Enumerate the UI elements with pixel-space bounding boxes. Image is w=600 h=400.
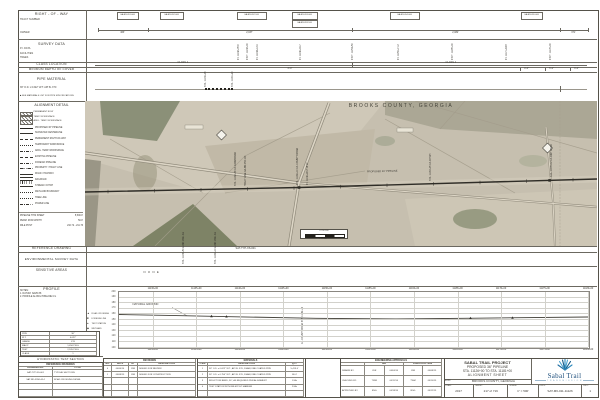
dimension-label: 463' <box>111 31 135 34</box>
profile-note: NOTES: <box>20 290 29 292</box>
legend-line-sample <box>20 198 33 199</box>
legend-item-label: PERMANENT RIGHT-OF-WAY <box>35 138 66 140</box>
survey-station-callout: P.O.T. 11176+00 <box>550 43 553 60</box>
dimension-tick <box>148 28 149 32</box>
station-label-top: 11130+00 <box>140 287 166 290</box>
right-of-way-band: GA-BR-051.000GA-BR-052.000GA-BR-052.100G… <box>86 10 598 39</box>
tract-number-box: GA-BR-052.000 <box>160 12 184 20</box>
legend-total-value: 50.0' <box>51 220 83 222</box>
station-label-top: 11165+00 <box>445 287 471 290</box>
legend-total-label: PIPELINE THIS SHEET <box>20 215 44 217</box>
survey-data-band: P.I. 11142+35.6P.O.T. 11143+00P.I. 11144… <box>86 39 598 62</box>
legend-line-sample <box>20 174 33 178</box>
profile-symbol-marker: ■ <box>87 317 89 320</box>
profile-grid-frame <box>118 291 590 349</box>
blank-panel <box>305 358 342 399</box>
table-cell: RSG <box>404 387 423 397</box>
table-cell <box>208 391 286 397</box>
tract-number-box: GA-BR-054.000 <box>390 12 420 20</box>
table-cell: CLASS <box>21 352 50 356</box>
legend-item-label: POWER LINE <box>35 203 49 205</box>
brand-subtitle-text: T R A N S M I S S I O N <box>547 380 582 382</box>
legend-line-sample <box>20 163 33 164</box>
section-title-min-depth: MINIMUM DEPTH OF COVER <box>18 67 85 71</box>
survey-station-callout: P.I. 11159+71.2 <box>398 44 401 60</box>
legend-hatch-swatch <box>20 120 33 125</box>
legend-line-sample <box>20 168 33 169</box>
table-cell: SAT-RD-XING-014 <box>19 377 53 384</box>
depth-value: 5'-0" <box>544 67 560 70</box>
location-label: LOC: <box>445 379 451 382</box>
profile-symbol-label: WETLAND <box>92 328 102 330</box>
survey-station-callout: P.O.T. 11143+00 <box>247 43 250 60</box>
brand-wordmark: Sabal Trail <box>531 372 598 380</box>
dimension-tick <box>588 28 589 32</box>
footer-cell-label: SCALE: <box>509 385 517 387</box>
footer-cell: SCALE:1" = 500' <box>508 384 538 398</box>
survey-station-callout: P.O.T. 11154+50 <box>352 43 355 60</box>
legend-divider <box>19 212 83 213</box>
elevation-label: 100 <box>99 346 116 349</box>
station-label-top: 11175+00 <box>532 287 558 290</box>
table-cell <box>138 391 196 397</box>
profile-panel: NATURAL GROUND C/L COUNTY ROAD STA. 1114… <box>86 286 598 357</box>
legend-line-sample <box>20 186 33 187</box>
tract-number-box: GA-BR-055.000 <box>521 12 543 20</box>
brand-rule <box>535 380 546 381</box>
scale-bar-numbers: 0 250 500 <box>301 230 347 232</box>
table-cell: 1 <box>50 352 97 356</box>
legend-item-label: RAILROAD <box>35 179 47 181</box>
pipe-tick <box>560 86 561 92</box>
location-value: BROOKS COUNTY, GEORGIA <box>456 379 531 383</box>
legend-hatch-label: ADDL. TEMP. WORKSPACE <box>34 120 62 122</box>
footer-cell-value: 217 of 719 <box>474 389 507 393</box>
depth-value: 3'-0" <box>569 67 585 70</box>
pipe-material-line <box>95 89 587 90</box>
table-cell: APPROVED BY: <box>341 387 365 397</box>
table-cell: SAT-TYP-XS-001 <box>19 370 53 377</box>
tract-number-box: GA-BR-053.100 <box>292 20 318 28</box>
brand-subtitle: T R A N S M I S S I O N <box>535 380 594 382</box>
pipeline-crossing-callout: STA. 11176+12 C/L DIRT ROAD <box>551 145 554 178</box>
label-tract-number: TRACT NUMBER <box>20 18 40 21</box>
station-label-top: 11135+00 <box>183 287 209 290</box>
legend-item-label: TREE LINE <box>35 197 47 199</box>
pipe-segment-heavy <box>205 88 233 90</box>
table-cell: TWM <box>365 376 385 386</box>
station-label-top: 11140+00 <box>227 287 253 290</box>
class-value-left: CLASS 1 <box>178 61 189 64</box>
scale-text: 1" = 500' <box>300 238 346 240</box>
legend-line-sample <box>20 180 33 183</box>
elevation-label: 180 <box>99 301 116 304</box>
footer-cell-label: REV: <box>583 385 588 387</box>
sensitive-areas-band: N O N E <box>86 266 598 286</box>
legend-title: ALIGNMENT DETAIL <box>19 103 84 107</box>
footer-cell-label: YEAR: <box>445 385 452 387</box>
environmental-callout: STA. 11140+10 LAND USE: AG <box>215 232 218 264</box>
dimension-tick <box>98 28 99 32</box>
table-cell: ROAD CROSSING DETAIL <box>53 377 103 384</box>
label-owner: OWNER <box>20 31 30 34</box>
footer-cell-value: 1 <box>582 389 598 393</box>
table-cell: 04/04/14 <box>385 366 405 376</box>
environmental-band: STA. 11136+50 LAND USE: AGSTA. 11140+10 … <box>86 252 598 266</box>
table-cell: 04/11/14 <box>385 376 405 386</box>
dimension-label: 2,082' <box>444 31 468 34</box>
legend-total-label: PERM. ROW WIDTH <box>20 220 42 222</box>
elevation-label: 170 <box>99 306 116 309</box>
table-cell: CHECKED BY: <box>341 376 365 386</box>
sheet-type: ALIGNMENT SHEET <box>444 373 531 377</box>
logo-box: Sabal Trail T R A N S M I S S I O N <box>531 359 598 385</box>
table-cell: DRAWN BY: <box>341 366 365 376</box>
legend-total-value: 5,500.0' <box>51 215 83 217</box>
pipeline-crossing-callout: STA. 11163+05 C/L DITCH <box>430 154 433 181</box>
reference-drawing-note: SAT-TYP-XS-001 <box>236 247 256 250</box>
table-cell <box>53 390 103 397</box>
legend-item-label: TEMPORARY WORKSPACE <box>35 144 64 146</box>
station-label-top: 11155+00 <box>357 287 383 290</box>
map-overlay: BROOKS COUNTY, GEORGIA PROPOSED 36" PIPE… <box>85 101 597 246</box>
table-cell: TYPICAL SECTIONS <box>53 370 103 377</box>
table-cell: RSG <box>365 387 385 397</box>
footer-cell-value: 2017 <box>444 389 473 393</box>
footer-cell: DWG:SAT-M6-011-11126 <box>539 384 583 398</box>
section-title-right-of-way: RIGHT - OF - WAY <box>18 12 85 16</box>
legend-total-value: 210.72 - 211.76 <box>51 225 83 227</box>
tract-number-box: GA-BR-051.000 <box>117 12 139 20</box>
profile-symbol-marker: ● <box>87 322 89 325</box>
alignment-detail-legend: ALIGNMENT DETAIL PERMANENT ROWTEMP. WORK… <box>19 103 84 244</box>
elevation-label: 200 <box>99 290 116 293</box>
section-title-reference-drawing: REFERENCE DRAWING <box>18 246 85 250</box>
legend-item-label: EXISTING PIPELINE <box>35 156 56 158</box>
table-cell <box>19 390 53 397</box>
section-title-environmental: ENVIRONMENTAL SURVEY DATA <box>18 257 85 261</box>
sensitive-areas-value: N O N E <box>144 270 160 274</box>
class-location-line <box>95 65 587 66</box>
legend-line-sample <box>20 133 33 134</box>
legend-item-label: WETLAND BOUNDARY <box>35 191 59 193</box>
county-label: BROOKS COUNTY, GEORGIA <box>311 103 491 109</box>
profile-symbol-marker: ▲ <box>87 312 90 315</box>
materials-table: MATERIALSITEMDESCRIPTIONQTY.136" O.D. x … <box>197 358 307 399</box>
profile-data-table: PIPE36"W.T.0.622"GRADEX70MAOP1,456 PSIGT… <box>20 331 100 357</box>
legend-item-label: PROPERTY / TRACT LINE <box>35 167 62 169</box>
profile-notes: NOTES:1. DATUM: NAVD 882. PROFILE ALONG … <box>20 290 82 302</box>
footer-cell: SHEET:217 of 719 <box>474 384 508 398</box>
footer-cell-label: DWG: <box>540 385 546 387</box>
label-facilities: FACILITIES <box>20 52 33 55</box>
pipeline-crossing-callout: STA. 11149+10 C/L COUNTY ROAD <box>297 148 300 185</box>
revisions-table: REVISIONSNO.DATEBYDESCRIPTION004/04/14JD… <box>103 358 199 399</box>
pipe-callout: STA. 11139+05 <box>205 71 208 87</box>
dimension-tick <box>560 28 561 32</box>
footer-cell-value: SAT-M6-011-11126 <box>539 389 582 393</box>
dimension-label: 2,037' <box>238 31 262 34</box>
survey-station-callout: P.O.T. 11165+00 <box>452 43 455 60</box>
section-title-sensitive-areas: SENSITIVE AREAS <box>18 268 85 272</box>
pipeline-crossing-callout: STA. 11142+36 C/L FARM ROAD <box>235 152 238 186</box>
legend-total-label: MILE POST <box>20 225 32 227</box>
tract-number-box: GA-BR-052.100 <box>237 12 267 20</box>
station-label-top: 11160+00 <box>401 287 427 290</box>
footer-cell-label: SHEET: <box>475 385 483 387</box>
alignment-sheet: RIGHT - OF - WAY TRACT NUMBER OWNER SURV… <box>0 0 600 400</box>
table-cell: JDR <box>365 366 385 376</box>
dimension-label: 371' <box>562 31 586 34</box>
pipe-material-item: 36" O.D. x 0.622" W.T. API 5L X70 <box>20 86 83 89</box>
profile-symbol-label: ROAD CROSSING <box>92 313 110 315</box>
profile-note: 2. PROFILE ALONG PIPELINE C/L <box>20 296 56 298</box>
pipe-callout: STA. 11141+90 <box>232 71 235 87</box>
aerial-map: BROOKS COUNTY, GEORGIA PROPOSED 36" PIPE… <box>85 101 597 246</box>
profile-symbol-label: TEST STATION <box>92 323 107 325</box>
legend-item-label: SURVEYED CENTERLINE <box>35 132 62 134</box>
elevation-label: 190 <box>99 295 116 298</box>
table-cell <box>19 384 53 391</box>
table-cell <box>53 384 103 391</box>
station-label-top: 11145+00 <box>270 287 296 290</box>
legend-line-sample <box>20 128 33 129</box>
legend-hatch-label: TEMP. WORKSPACE <box>34 116 55 118</box>
station-label-top: 11150+00 <box>314 287 340 290</box>
footer-cell: YEAR:2017 <box>444 384 474 398</box>
station-label-top: 11180+00 <box>575 287 600 290</box>
environmental-callout: STA. 11136+50 LAND USE: AG <box>183 232 186 264</box>
table-cell <box>286 391 304 397</box>
pipeline-label: PROPOSED 36" PIPELINE <box>367 170 398 174</box>
label-pi-data: P.I. DATA <box>20 47 30 50</box>
legend-item-label: ADDL. TEMP. WORKSPACE <box>35 150 64 152</box>
table-cell: 04/18/14 <box>385 387 405 397</box>
legend-hatch-label: PERMANENT ROW <box>34 111 54 113</box>
pipe-material-band: STA. 11139+05 STA. 11141+90 <box>86 72 598 101</box>
table-cell <box>112 391 129 397</box>
title-block: SABAL TRAIL PROJECT PROPOSED 36" PIPELIN… <box>443 358 599 399</box>
legend-item-label: STREAM / DITCH <box>35 185 53 187</box>
legend-line-sample <box>20 204 33 205</box>
section-title-class-location: CLASS LOCATION <box>18 62 85 66</box>
sabal-trail-starburst-icon <box>557 359 573 372</box>
section-title-survey-data: SURVEY DATA <box>18 42 85 46</box>
footer-cell: REV:1 <box>582 384 598 398</box>
survey-station-callout: P.I. 11171+44.8 <box>506 44 509 60</box>
reference-drawings-table: REFERENCE DRAWINGSDRAWING NO.TITLESAT-TY… <box>18 362 105 399</box>
legend-line-sample <box>20 151 33 152</box>
elevation-label: 110 <box>99 340 116 343</box>
pipeline-crossing-callout: P.I. 11149+96 2°14' LT. <box>307 162 310 185</box>
project-box: SABAL TRAIL PROJECT PROPOSED 36" PIPELIN… <box>444 359 532 380</box>
station-label-top: 11170+00 <box>488 287 514 290</box>
table-cell <box>104 391 112 397</box>
section-title-hydrostatic: HYDROSTATIC TEST SECTION <box>18 357 103 361</box>
elevation-label: 120 <box>99 334 116 337</box>
table-cell: TWM <box>404 376 423 386</box>
class-value-right: CLASS 1 <box>446 61 457 64</box>
profile-note: 1. DATUM: NAVD 88 <box>20 293 41 295</box>
survey-station-callout: P.I. 11142+35.6 <box>238 44 241 60</box>
profile-symbol-marker: ◆ <box>87 327 89 330</box>
pipeline-crossing-callout: TRACT LINE GA-BR-052.100 <box>245 156 248 186</box>
table-cell: 06/10/15 <box>423 376 442 386</box>
footer-cell-value: 1" = 500' <box>508 389 537 393</box>
brand-rule <box>583 380 594 381</box>
table-cell <box>129 391 138 397</box>
title-block-footer: YEAR:2017SHEET:217 of 719SCALE:1" = 500'… <box>444 384 598 398</box>
legend-item-label: ROAD / HIGHWAY <box>35 173 54 175</box>
legend-line-sample <box>20 157 33 158</box>
dimension-tick <box>352 28 353 32</box>
table-cell: 06/08/15 <box>423 366 442 376</box>
table-cell: JDR <box>404 366 423 376</box>
legend-item-label: PROPOSED 36" PIPELINE <box>35 127 62 129</box>
survey-station-callout: P.I. 11149+09.7 <box>300 44 303 60</box>
depth-value-main: 3'-0" <box>288 67 293 70</box>
dimension-line <box>98 30 588 31</box>
engineering-approvals-table: ENGINEERING APPROVALSBIDCONSTRUCTIONDRAW… <box>340 358 445 399</box>
profile-symbol-label: FOREIGN LINE <box>92 318 107 320</box>
depth-value: 4'-0" <box>519 67 535 70</box>
survey-station-callout: P.I. 11144+12.9 <box>257 44 260 60</box>
table-cell <box>198 391 208 397</box>
label-trees: TREES <box>20 56 28 59</box>
table-cell: 06/12/15 <box>423 387 442 397</box>
legend-line-sample <box>20 145 33 146</box>
legend-item-label: FOREIGN PIPELINE <box>35 162 56 164</box>
pipe-material-note: ■ SEE MATERIALS LIST FOR PIPE SPECIFICAT… <box>20 95 83 98</box>
legend-line-sample <box>20 192 33 193</box>
legend-line-sample <box>20 139 33 140</box>
section-title-pipe-material: PIPE MATERIAL <box>18 77 85 81</box>
